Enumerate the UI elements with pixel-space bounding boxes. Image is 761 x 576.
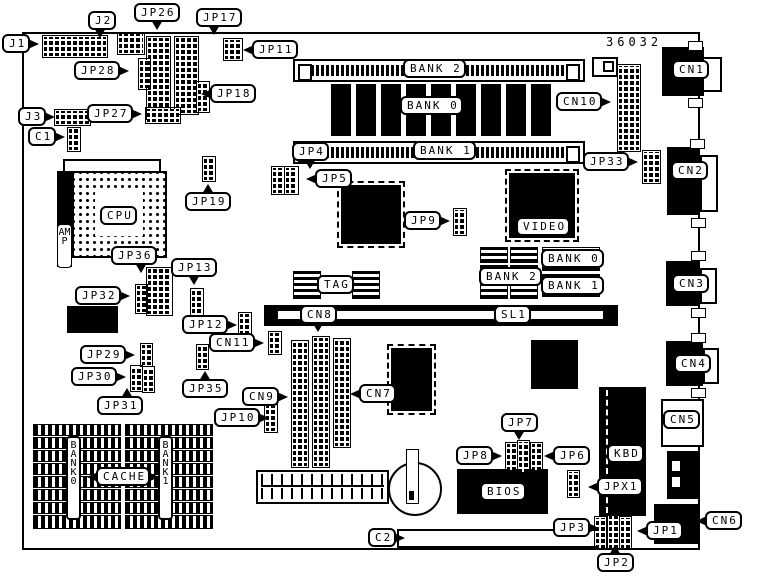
cn10-connector (617, 64, 641, 152)
label-cn5: CN5 (663, 410, 700, 429)
label-video-bank2: BANK 2 (479, 267, 542, 286)
label-jp19: JP19 (185, 192, 231, 211)
dram-chip (331, 84, 351, 136)
pointer (350, 389, 361, 399)
jp7-jumper (517, 440, 530, 474)
pointer (188, 275, 200, 285)
edge-component (592, 57, 618, 77)
pointer (135, 263, 147, 273)
label-jp29: JP29 (80, 345, 126, 364)
pointer (306, 174, 317, 184)
j1-connector (42, 35, 108, 58)
jp29-jumper (140, 343, 153, 367)
cn11-jumper (268, 331, 282, 355)
motherboard-diagram: 36032 J1 J2 JP26 JP17 JP11 JP28 JP18 J3 … (0, 0, 761, 576)
asic-chip (531, 340, 578, 389)
label-bank0-dram: BANK 0 (400, 96, 463, 115)
video-ram-chip (510, 247, 538, 263)
pointer (588, 482, 599, 492)
pointer (131, 109, 142, 119)
pointer (115, 372, 126, 382)
edge-component-cell (603, 61, 614, 72)
label-cn10: CN10 (556, 92, 602, 111)
label-cn9: CN9 (242, 387, 279, 406)
label-jp17: JP17 (196, 8, 242, 27)
edge-stub (691, 218, 706, 228)
simm-end-clip (566, 146, 580, 163)
label-jp9: JP9 (404, 211, 441, 230)
c1-component (67, 127, 81, 152)
board-part-number: 36032 (606, 35, 662, 49)
pointer (202, 184, 214, 194)
label-jp7: JP7 (501, 413, 538, 432)
edge-stub (691, 251, 706, 261)
label-sl1: SL1 (494, 305, 531, 324)
jp32-jumper (135, 284, 148, 314)
video-ram-chip (480, 247, 508, 263)
pointer (119, 291, 130, 301)
label-jp2: JP2 (597, 553, 634, 572)
label-jp12: JP12 (182, 315, 228, 334)
soic-chip (67, 306, 118, 333)
label-jp4: JP4 (292, 142, 329, 161)
jp35-jumper (196, 344, 209, 370)
dram-chip (356, 84, 376, 136)
jp33-jumper (642, 150, 661, 184)
label-jp11: JP11 (252, 40, 298, 59)
label-amp: AMP (57, 224, 72, 268)
pointer (226, 320, 237, 330)
label-jp36: JP36 (111, 246, 157, 265)
pin-row (261, 474, 384, 487)
pointer (513, 430, 525, 440)
label-cpu: CPU (100, 206, 137, 225)
label-cache-bank0: BANK 0 (66, 436, 81, 520)
pointer (94, 28, 106, 38)
label-jp32: JP32 (75, 286, 121, 305)
label-jp3: JP3 (553, 518, 590, 537)
cache-chip (33, 424, 121, 436)
dram-chip (531, 84, 551, 136)
port-pin (671, 460, 681, 472)
pointer (151, 20, 163, 30)
pointer (637, 526, 648, 536)
jp28-jumper (138, 58, 151, 90)
cache-chip (125, 424, 213, 436)
jp4-jumper (271, 166, 285, 195)
pointer (208, 25, 220, 35)
pointer (277, 392, 288, 402)
label-cache: CACHE (96, 467, 150, 486)
label-cn1: CN1 (672, 60, 709, 79)
edge-stub (688, 41, 703, 51)
pointer (148, 472, 159, 482)
pointer (609, 545, 621, 555)
label-jp5: JP5 (315, 169, 352, 188)
label-jp33: JP33 (583, 152, 629, 171)
jpx1-jumper (567, 470, 580, 498)
jp9-jumper (453, 208, 467, 236)
pointer (44, 112, 55, 122)
tag-sram-chip (352, 271, 380, 299)
label-j3: J3 (18, 107, 46, 126)
cn7-header (333, 338, 351, 448)
label-cn8: CN8 (300, 305, 337, 324)
label-bank2-simm: BANK 2 (403, 59, 466, 78)
pointer (304, 159, 316, 169)
label-jp13: JP13 (171, 258, 217, 277)
pointer (600, 97, 611, 107)
label-cn2: CN2 (671, 161, 708, 180)
jp36-jumper-block (146, 267, 173, 316)
label-jp18: JP18 (210, 84, 256, 103)
label-jpx1: JPX1 (597, 477, 643, 496)
pointer (312, 322, 324, 332)
pin-row (261, 488, 384, 499)
label-jp26: JP26 (134, 3, 180, 22)
cn8-header (312, 336, 330, 468)
jp19-jumper (202, 156, 216, 182)
label-jp6: JP6 (553, 446, 590, 465)
jp6-jumper (530, 442, 543, 472)
edge-stub (691, 308, 706, 318)
io-controller-chip (391, 348, 432, 411)
jp31-jumper (142, 366, 155, 393)
label-jp30: JP30 (71, 367, 117, 386)
battery-clip-tip (409, 491, 414, 500)
edge-stub (691, 333, 706, 343)
j2-connector (117, 32, 145, 55)
pointer (258, 413, 269, 423)
pointer (491, 451, 502, 461)
pointer (544, 451, 555, 461)
edge-stub (690, 139, 705, 149)
pointer (201, 89, 212, 99)
label-jp1: JP1 (646, 521, 683, 540)
label-j2: J2 (88, 11, 116, 30)
label-j1: J1 (2, 34, 30, 53)
label-cache-bank1: BANK 1 (158, 436, 173, 520)
dram-chip (506, 84, 526, 136)
label-jp28: JP28 (74, 61, 120, 80)
label-jp10: JP10 (214, 408, 260, 427)
label-cn3: CN3 (672, 274, 709, 293)
label-jp31: JP31 (97, 396, 143, 415)
edge-stub (691, 388, 706, 398)
pointer (199, 371, 211, 381)
label-c2: C2 (368, 528, 396, 547)
label-cn4: CN4 (674, 354, 711, 373)
label-cn7: CN7 (359, 384, 396, 403)
pointer (588, 523, 599, 533)
label-cn6: CN6 (705, 511, 742, 530)
label-c1: C1 (28, 127, 56, 146)
jp5-jumper (284, 166, 299, 195)
simm-end-clip (566, 64, 580, 81)
edge-stub (688, 98, 703, 108)
pointer (87, 472, 98, 482)
pointer (124, 350, 135, 360)
label-video-bank1: BANK 1 (541, 276, 604, 295)
label-cn11: CN11 (209, 333, 255, 352)
jp3-jumper (594, 516, 607, 550)
pointer (253, 338, 264, 348)
label-video: VIDEO (516, 217, 570, 236)
label-jp8: JP8 (456, 446, 493, 465)
pointer (243, 45, 254, 55)
cn9-header (291, 340, 309, 468)
dram-chip (481, 84, 501, 136)
pin-connector-strip (256, 470, 389, 504)
pointer (394, 533, 405, 543)
label-tag: TAG (317, 275, 354, 294)
pointer (627, 157, 638, 167)
label-kbd: KBD (607, 444, 644, 463)
stacked-port-connector (667, 451, 700, 499)
jp27-jumper (145, 107, 181, 124)
battery-clip (406, 449, 419, 504)
jp11-jumper (223, 38, 243, 61)
chipset-chip (341, 185, 401, 244)
dram-chip (381, 84, 401, 136)
pointer (118, 66, 129, 76)
port-pin (671, 476, 681, 488)
label-video-bank0: BANK 0 (541, 249, 604, 268)
pointer (696, 516, 707, 526)
j3-connector (54, 109, 91, 126)
pointer (54, 132, 65, 142)
pointer (28, 39, 39, 49)
label-bank1-simm: BANK 1 (413, 141, 476, 160)
cn2-connector (667, 147, 700, 215)
pointer (439, 216, 450, 226)
label-jp35: JP35 (182, 379, 228, 398)
label-bios: BIOS (480, 482, 526, 501)
simm-end-clip (298, 64, 312, 81)
pointer (121, 388, 133, 398)
label-jp27: JP27 (87, 104, 133, 123)
